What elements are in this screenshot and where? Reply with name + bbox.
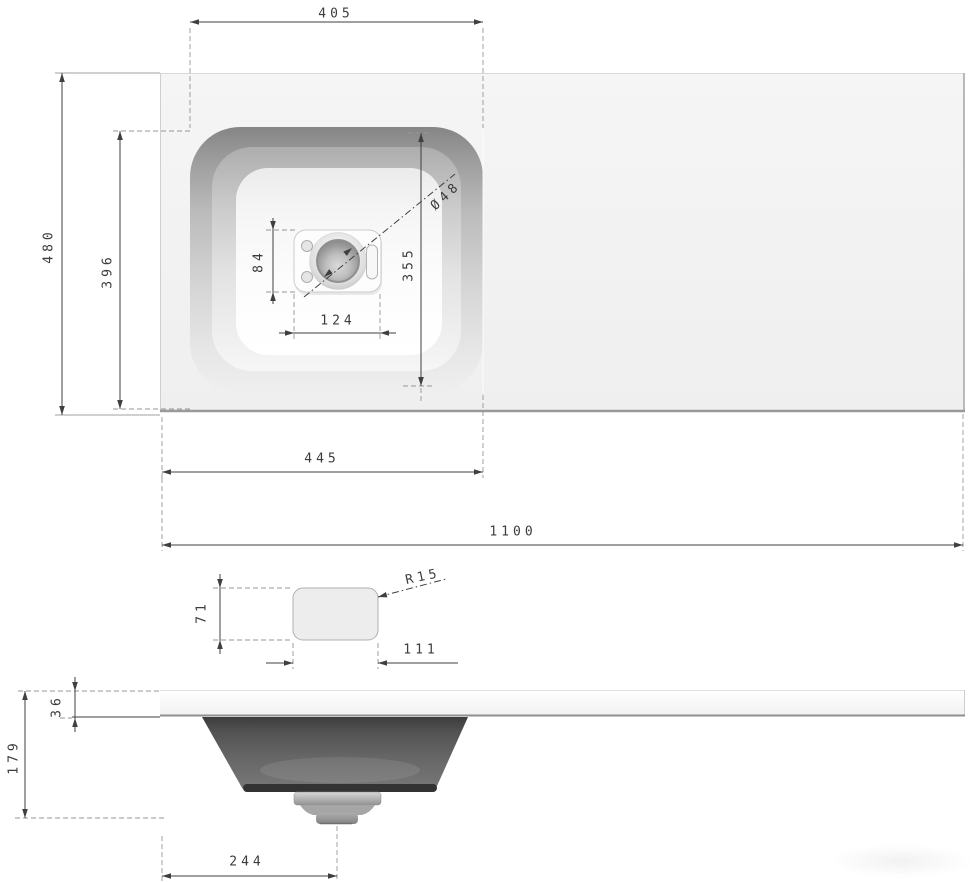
dim-label-detail-height: 71 [196,600,209,624]
dim-label-basin-recess-depth: 396 [102,253,115,288]
drawing-linework [0,0,970,882]
dim-label-countertop-width: 1100 [489,526,536,539]
overflow-slot [367,245,378,279]
dim-label-drain-center-offset: 244 [229,856,264,869]
dim-label-countertop-depth: 480 [43,228,56,263]
dim-label-countertop-thickness: 36 [51,694,64,718]
screw-hole-bottom [302,272,313,283]
dim-label-drain-plate-width: 124 [320,315,355,328]
front-view [72,690,965,824]
dim-label-basin-zone-width: 445 [304,453,339,466]
drain-neck [316,813,358,824]
detail-view [293,588,378,640]
dim-label-basin-opening-width: 405 [318,8,353,21]
detail-rounded-rect [293,588,378,640]
watermark-smudge [828,845,970,877]
dim-label-total-height: 179 [8,739,21,774]
dim-label-basin-floor-depth: 355 [403,246,416,281]
drain-flange [294,792,381,805]
washbasin-technical-drawing: 405 480 396 Ø48 84 355 124 445 1100 R15 … [0,0,970,882]
dim-label-detail-width: 111 [403,644,438,657]
bowl-bottom-rim [243,784,437,792]
top-view [160,73,965,412]
drain-hole [317,240,359,282]
countertop-front-view [160,690,965,716]
dim-label-drain-plate-depth: 84 [253,249,266,273]
screw-hole-top [302,241,313,252]
